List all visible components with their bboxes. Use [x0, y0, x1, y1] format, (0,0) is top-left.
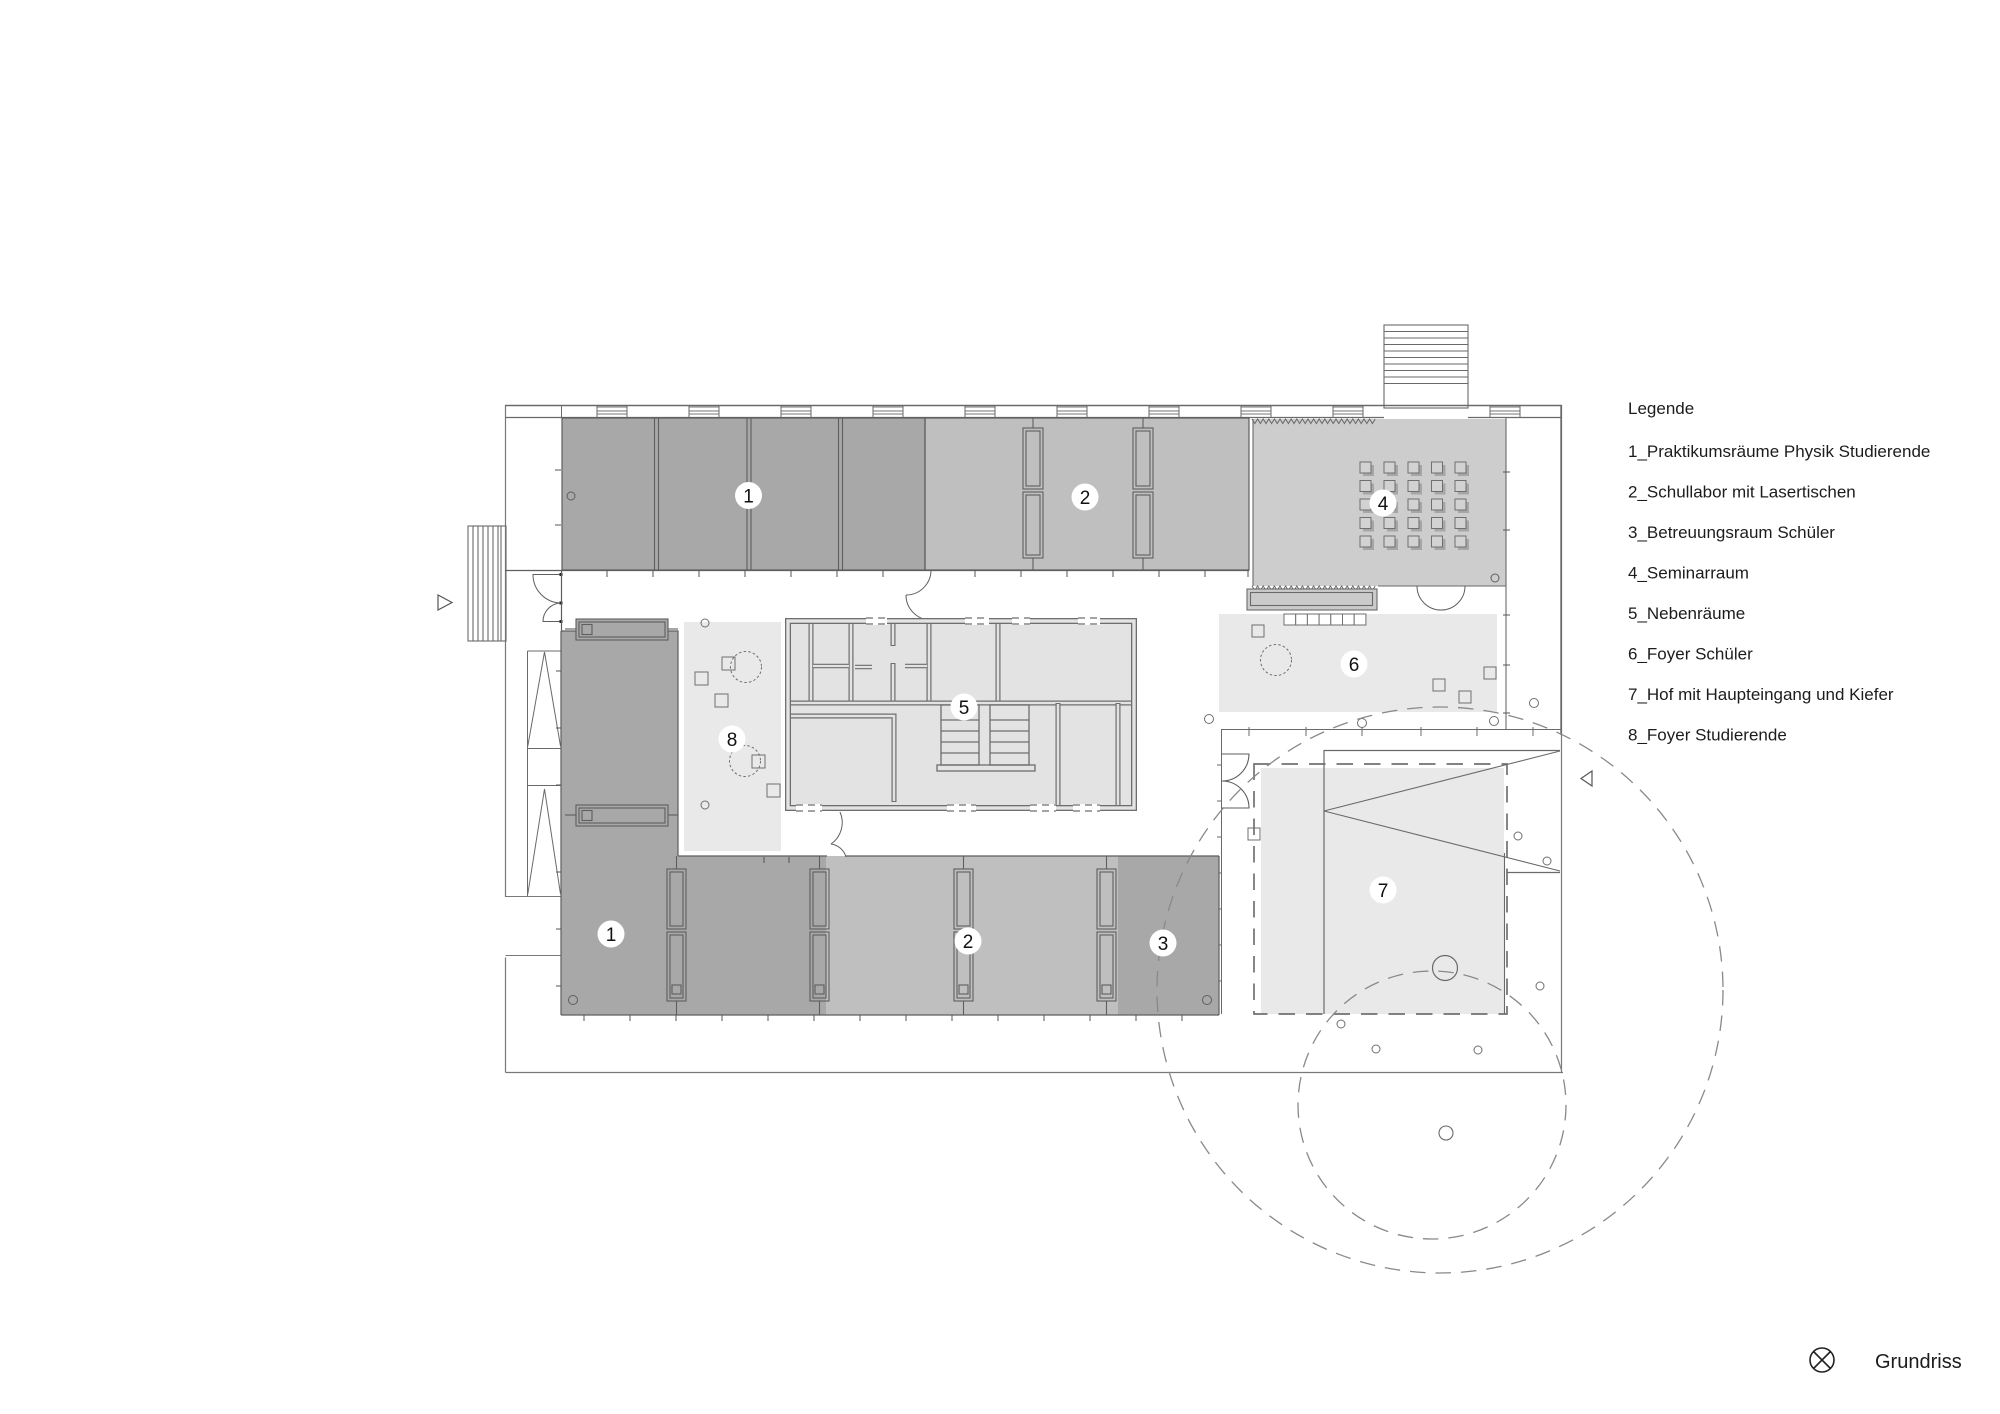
svg-text:2: 2 — [963, 932, 974, 953]
svg-text:Legende: Legende — [1628, 399, 1694, 418]
svg-text:7: 7 — [1378, 881, 1389, 902]
svg-text:6: 6 — [1349, 655, 1360, 676]
svg-text:8_Foyer Studierende: 8_Foyer Studierende — [1628, 726, 1787, 745]
svg-text:4: 4 — [1378, 494, 1389, 515]
svg-text:3: 3 — [1158, 934, 1169, 955]
svg-text:1: 1 — [743, 487, 754, 508]
svg-text:1: 1 — [606, 925, 617, 946]
svg-text:7_Hof mit Haupteingang und Kie: 7_Hof mit Haupteingang und Kiefer — [1628, 685, 1894, 704]
svg-text:6_Foyer Schüler: 6_Foyer Schüler — [1628, 645, 1753, 664]
svg-text:3_Betreuungsraum Schüler: 3_Betreuungsraum Schüler — [1628, 523, 1835, 542]
svg-text:2: 2 — [1080, 488, 1091, 509]
svg-text:Grundriss: Grundriss — [1875, 1351, 1962, 1373]
svg-text:5: 5 — [959, 698, 970, 719]
svg-text:4_Seminarraum: 4_Seminarraum — [1628, 564, 1749, 583]
svg-text:1_Praktikumsräume Physik Studi: 1_Praktikumsräume Physik Studierende — [1628, 442, 1930, 461]
svg-text:8: 8 — [727, 730, 738, 751]
svg-text:5_Nebenräume: 5_Nebenräume — [1628, 604, 1745, 623]
svg-text:2_Schullabor mit Lasertischen: 2_Schullabor mit Lasertischen — [1628, 483, 1856, 502]
